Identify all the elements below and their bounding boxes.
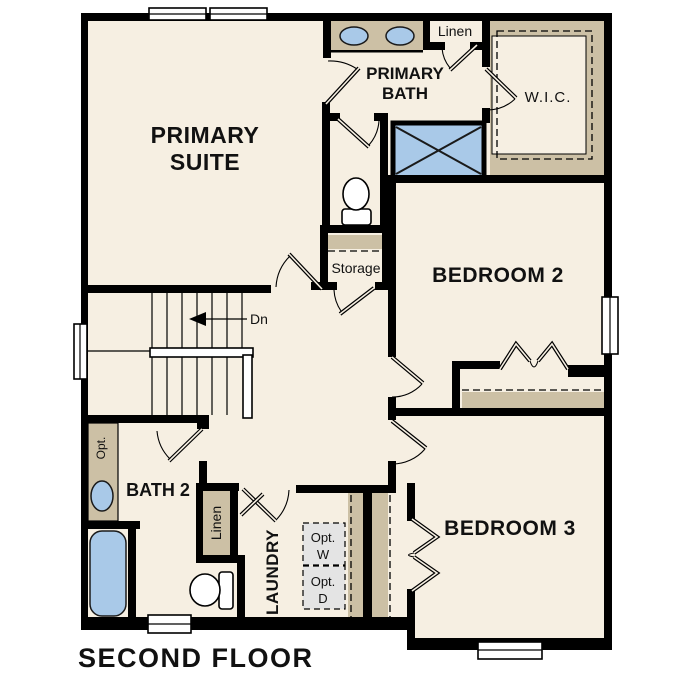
window-bedroom3 [478, 642, 542, 659]
wall-water-closet-right [380, 113, 388, 227]
wall-bedroom2-bedroom3 [388, 408, 612, 416]
wall-linen-lower-right [230, 483, 238, 563]
vanity-sink-left [340, 27, 368, 45]
toilet-bath2 [190, 572, 233, 609]
primary-suite-label-line1: PRIMARY [151, 122, 260, 148]
bedroom2-label: BEDROOM 2 [432, 264, 564, 287]
wall-nook-laundry [237, 555, 245, 620]
floor-plan-drawing: PRIMARY SUITE PRIMARY BATH Linen W.I.C. … [0, 0, 687, 687]
primary-suite-label-line2: SUITE [170, 149, 240, 175]
wall-laundry-bedroom3-closet [363, 493, 372, 620]
vanity-sink-right [386, 27, 414, 45]
wall-hall-bedroom2 [388, 175, 396, 357]
primary-bath-label-line1: PRIMARY [366, 64, 444, 83]
toilet-water-closet [342, 178, 371, 225]
primary-bath-label-line2: BATH [382, 84, 428, 103]
wall-suite-bottom [81, 285, 271, 293]
wall-linen-lower-left [196, 483, 203, 563]
bedroom2-closet-shelf [462, 392, 604, 408]
vanity-edge [331, 50, 423, 53]
toilet-tank [342, 209, 371, 225]
wall-storage-left [320, 225, 328, 290]
window-suite-right [210, 8, 267, 20]
wall-bath2-door-jamb [197, 415, 209, 429]
window-bedroom2 [602, 297, 618, 354]
bath2-counter-opt-label: Opt. [94, 437, 108, 460]
storage-label: Storage [331, 260, 380, 276]
floor-title: SECOND FLOOR [78, 643, 314, 673]
wall-bath2-door-stub [199, 461, 207, 487]
wall-suite-right [323, 13, 331, 58]
window-suite-left [149, 8, 206, 20]
wall-linen-lower-bottom [196, 555, 238, 563]
wall-stairs-bottom [81, 415, 205, 423]
bedroom3-closet-shelf [372, 493, 388, 618]
toilet-bowl [343, 178, 369, 210]
dryer-label-line1: Opt. [311, 574, 336, 589]
bedroom3-label: BEDROOM 3 [444, 517, 576, 540]
wall-bedroom3-closet-front-top [407, 483, 415, 521]
laundry-label: LAUNDRY [263, 529, 282, 615]
wall-laundry-top [296, 485, 396, 493]
wall-wic-bottom [482, 175, 612, 183]
wall-bedroom3-closet-front-bottom [407, 589, 415, 619]
wall-exterior-step [407, 617, 415, 650]
toilet-bowl [190, 574, 220, 606]
wall-tub-alcove-right [128, 521, 136, 620]
wic-label: W.I.C. [525, 89, 572, 106]
stair-handrail [150, 348, 253, 357]
floor-plan: PRIMARY SUITE PRIMARY BATH Linen W.I.C. … [0, 0, 687, 687]
window-bath2 [148, 615, 191, 633]
wall-water-closet-left [322, 102, 330, 227]
bath2-label: BATH 2 [126, 480, 190, 500]
linen-lower-label: Linen [208, 506, 224, 540]
bath2-sink [91, 481, 113, 511]
washer-label-line1: Opt. [311, 530, 336, 545]
wall-bath-bedroom2 [390, 175, 490, 183]
wall-wc-bottom [322, 225, 388, 233]
wall-storage-front-right [375, 282, 390, 290]
wall-bath-wic-upper [482, 13, 490, 67]
wall-bedroom2-closet-left [452, 361, 460, 416]
toilet-tank [219, 572, 233, 609]
stair-handrail-return [243, 355, 252, 418]
washer-label-line2: W [317, 547, 330, 562]
linen-upper-label: Linen [438, 23, 472, 39]
laundry-counter [348, 493, 363, 618]
stairs-down-label: Dn [250, 311, 268, 327]
wall-bedroom2-closet-front-right [568, 365, 604, 377]
bathtub [90, 531, 126, 616]
storage-shelf [328, 235, 382, 249]
wall-exterior-left [81, 13, 88, 630]
dryer-label-line2: D [318, 591, 327, 606]
window-stairwell [74, 324, 87, 379]
